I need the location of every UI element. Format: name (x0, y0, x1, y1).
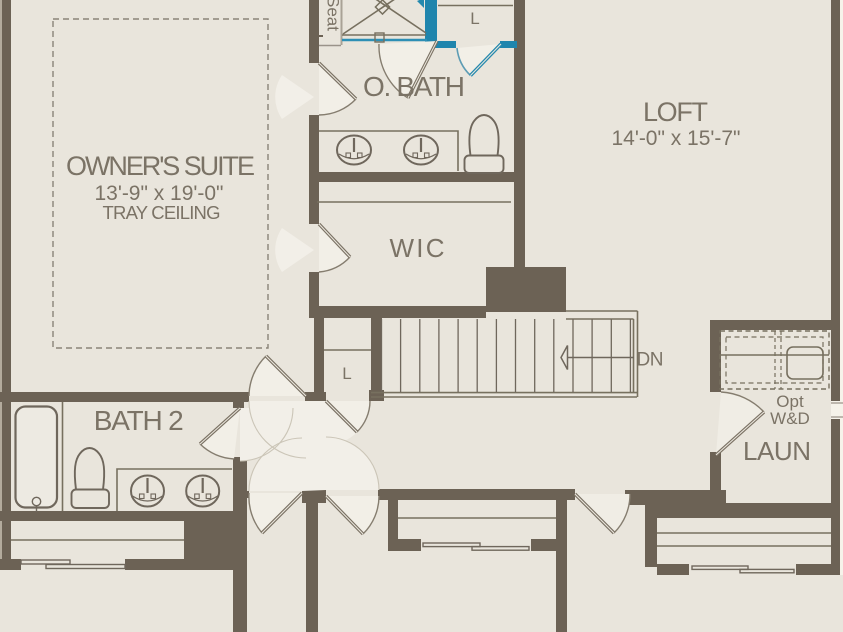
svg-text:TRAY CEILING: TRAY CEILING (103, 202, 221, 223)
svg-text:14'-0" x 15'-7": 14'-0" x 15'-7" (612, 127, 741, 150)
svg-text:LAUN: LAUN (743, 436, 811, 466)
svg-text:BATH 2: BATH 2 (94, 405, 184, 436)
svg-text:Seat: Seat (324, 0, 343, 31)
svg-text:LOFT: LOFT (643, 97, 709, 127)
svg-text:OWNER'S SUITE: OWNER'S SUITE (66, 151, 256, 181)
svg-text:L: L (470, 9, 479, 28)
svg-text:DN: DN (637, 350, 664, 371)
svg-text:WIC: WIC (390, 233, 445, 263)
svg-text:W&D: W&D (770, 409, 810, 428)
svg-text:L: L (342, 364, 351, 383)
svg-text:O. BATH: O. BATH (363, 71, 465, 102)
